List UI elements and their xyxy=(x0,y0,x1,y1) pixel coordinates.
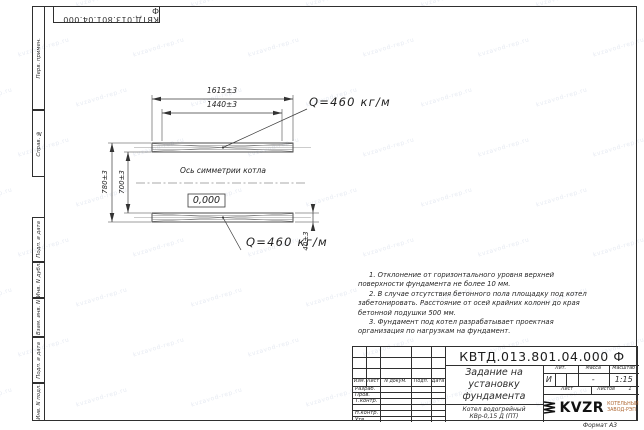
mass-value: - xyxy=(578,373,609,387)
margin-box-vzam-inv: Взам. инв. N xyxy=(32,298,45,337)
margin-box-inv-podl: Инв. N подл. xyxy=(32,383,45,421)
dimension-700 xyxy=(124,152,151,213)
dimension-780 xyxy=(108,143,151,222)
row-utv: Утв. xyxy=(355,417,366,423)
margin-label: Инв. N подл. xyxy=(36,384,42,420)
load-label-top: Q=460 кг/м xyxy=(309,95,391,109)
note-1: 1. Отклонение от горизонтального уровня … xyxy=(358,271,598,290)
row-prov: Пров. xyxy=(355,392,370,398)
scale-value: 1:15 xyxy=(609,373,640,387)
dim-700-label: 700±3 xyxy=(118,170,126,194)
scale-header: Масштаб xyxy=(609,365,640,373)
margin-label: Подп. и дата xyxy=(36,342,42,379)
spring-icon xyxy=(543,400,556,415)
drawing-sheet: kvzavod-rep.rukvzavod-rep.rukvzavod-rep.… xyxy=(0,0,644,430)
lit-header: Лит. xyxy=(543,365,578,373)
elevation-mark-value: 0,000 xyxy=(188,194,225,207)
margin-label: Инв. N дубл. xyxy=(36,262,42,297)
titleblock-designation: КВТД.013.801.04.000 Ф xyxy=(445,347,639,365)
col-date: Дата xyxy=(431,378,445,386)
lit-value: И xyxy=(543,373,555,387)
symmetry-axis-label: Ось симметрии котла xyxy=(178,166,268,175)
row-nkontr: Н.контр. xyxy=(355,410,378,416)
product-name: Котел водогрейный КВр-0,15 Д (ПТ) xyxy=(445,404,543,422)
margin-label: Справ. № xyxy=(36,130,42,157)
org-name: КОТЕЛЬНЫЙ ЗАВОД-РЭП xyxy=(607,402,638,413)
format-note: Формат А3 xyxy=(560,422,640,429)
col-sign: Подп. xyxy=(411,378,431,386)
dim-1440-label: 1440±3 xyxy=(186,100,258,109)
margin-label: Подп. и дата xyxy=(36,221,42,258)
logo-cell: KVZR КОТЕЛЬНЫЙ ЗАВОД-РЭП xyxy=(543,394,639,423)
top-designation-stamp: КВТД.013.801.04.000 Ф xyxy=(53,6,160,23)
dim-780-label: 780±3 xyxy=(101,170,109,194)
note-3: 3. Фундамент под котел разрабатывает про… xyxy=(358,318,598,337)
note-2: 2. В случае отсутствия бетонного пола пл… xyxy=(358,290,598,318)
margin-box-podp-data-1: Подп. и дата xyxy=(32,217,45,262)
technical-notes: 1. Отклонение от горизонтального уровня … xyxy=(358,271,598,337)
margin-box-podp-data-2: Подп. и дата xyxy=(32,337,45,383)
load-label-bottom: Q=460 кг/м xyxy=(246,235,328,249)
sheet-label: Лист xyxy=(543,386,591,394)
margin-label: Взам. инв. N xyxy=(36,300,42,335)
row-razrab: Разраб. xyxy=(355,386,375,392)
col-doc: N докум. xyxy=(380,378,411,386)
dim-1615-label: 1615±3 xyxy=(186,86,258,95)
margin-box-sprav-n: Справ. № xyxy=(32,110,45,177)
col-izm: Изм. xyxy=(353,378,366,386)
row-tkontr: Т.контр. xyxy=(355,398,377,404)
mass-header: Масса xyxy=(578,365,609,373)
margin-box-perv-primen: Перв. примен. xyxy=(32,6,45,110)
top-designation-text: КВТД.013.801.04.000 Ф xyxy=(54,6,159,24)
title-block: КВТД.013.801.04.000 Ф Задание на установ… xyxy=(352,346,638,421)
margin-label: Перв. примен. xyxy=(36,38,42,78)
margin-box-inv-dubl: Инв. N дубл. xyxy=(32,262,45,298)
dimension-1440 xyxy=(162,109,282,141)
sheets-label: Листов xyxy=(591,386,621,394)
load-leader-bottom xyxy=(222,216,241,250)
sheets-value: 1 xyxy=(621,386,639,394)
logo-text: KVZR xyxy=(559,400,604,416)
col-list: Лист xyxy=(366,378,380,386)
document-title: Задание на установку фундамента xyxy=(445,365,543,404)
